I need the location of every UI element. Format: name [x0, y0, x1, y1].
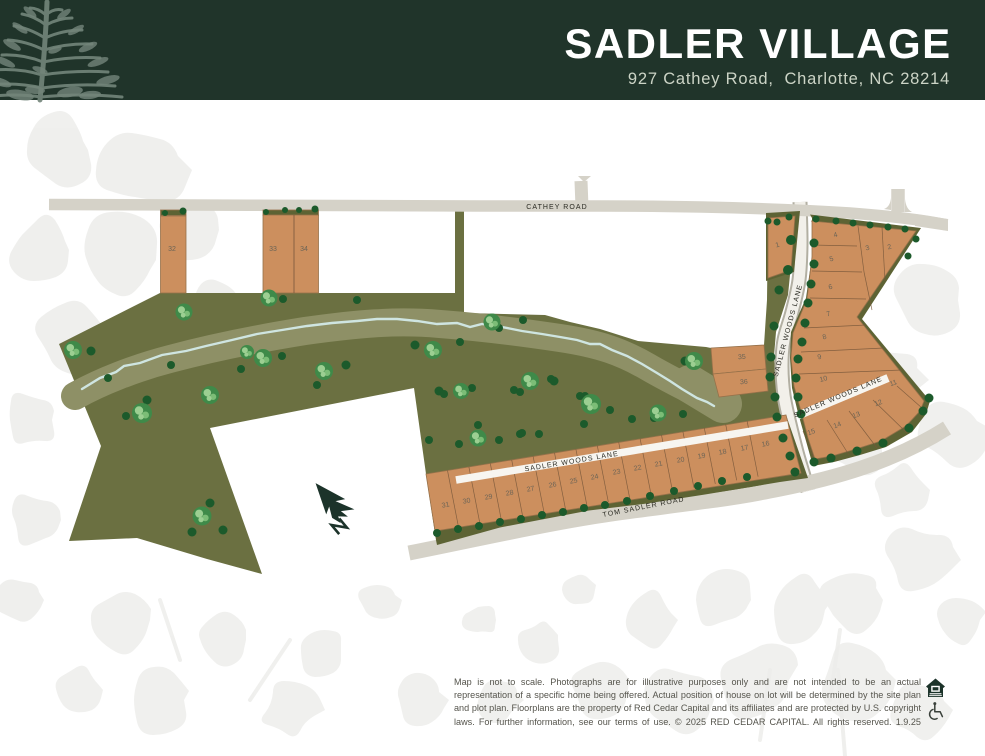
- svg-text:20: 20: [676, 456, 685, 464]
- svg-text:16: 16: [761, 440, 770, 448]
- svg-text:17: 17: [740, 444, 749, 452]
- svg-text:22: 22: [633, 464, 642, 472]
- svg-text:SADLER VILLAGE: SADLER VILLAGE: [564, 20, 951, 67]
- svg-text:25: 25: [569, 477, 578, 485]
- svg-text:33: 33: [269, 246, 277, 253]
- svg-text:CATHEY ROAD: CATHEY ROAD: [526, 204, 587, 211]
- svg-text:27: 27: [526, 485, 535, 493]
- svg-text:36: 36: [740, 379, 748, 387]
- svg-text:30: 30: [462, 497, 471, 505]
- svg-text:26: 26: [548, 481, 557, 489]
- svg-text:35: 35: [738, 354, 746, 362]
- svg-text:34: 34: [300, 246, 308, 253]
- svg-text:24: 24: [590, 473, 599, 481]
- svg-text:23: 23: [612, 468, 621, 476]
- svg-text:927 Cathey Road, Charlotte, N: 927 Cathey Road, Charlotte, NC 28214: [628, 70, 950, 88]
- svg-text:29: 29: [484, 493, 493, 501]
- svg-text:28: 28: [505, 489, 514, 497]
- svg-text:18: 18: [718, 448, 727, 456]
- svg-text:31: 31: [441, 501, 450, 509]
- svg-text:19: 19: [697, 452, 706, 460]
- svg-text:21: 21: [654, 460, 663, 468]
- svg-text:32: 32: [168, 246, 176, 253]
